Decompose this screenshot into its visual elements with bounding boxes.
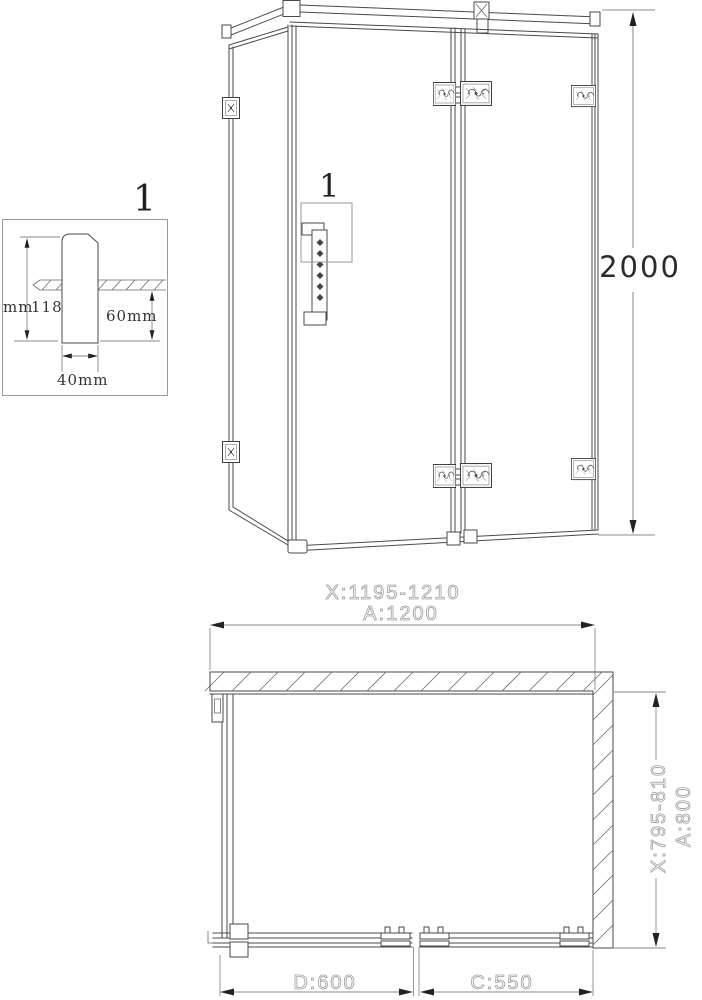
plan-dim-door-value: C:550 [470, 972, 533, 994]
detail-dim-protrusion-value: 60mm [106, 307, 158, 325]
detail-dim-width: 40mm [57, 345, 109, 389]
drawing-svg: 1 mm 118 60mm 40mm [0, 0, 702, 1000]
plan-dim-depth: X:795-810 A:800 [613, 692, 695, 948]
plan-side-panel [208, 694, 233, 943]
right-wall [593, 672, 613, 948]
top-rail [222, 1, 600, 39]
wall-bracket-bottom-left [223, 442, 240, 463]
handle-section [62, 234, 98, 343]
plan-view: X:1195-1210 A:1200 [205, 582, 695, 996]
door-handle [302, 223, 327, 325]
detail-view: 1 mm 118 60mm 40mm [3, 179, 168, 396]
glass-panels [229, 22, 598, 553]
wall-bracket-top-left [223, 98, 240, 119]
elevation-view: 1 2000 [222, 1, 681, 554]
plan-front-edge [213, 924, 593, 957]
elevation-dim-height: 2000 [598, 10, 681, 535]
plan-hinge-right [420, 927, 449, 946]
plan-hinge-left [381, 927, 410, 946]
plan-dim-fixed-value: D:600 [293, 972, 356, 994]
elevation-dim-height-value: 2000 [599, 250, 681, 284]
rail-corner-joint [283, 1, 300, 17]
technical-drawing-sheet: 1 mm 118 60mm 40mm [0, 0, 702, 1000]
wall-clamp-bottom-right [571, 458, 595, 479]
plan-dim-door: C:550 [420, 950, 593, 996]
rail-clamp [474, 2, 489, 33]
elevation-callout-label: 1 [319, 167, 339, 205]
plan-dim-width: A:1200 [363, 603, 438, 625]
detail-dim-total-value: 118 [31, 298, 63, 316]
plan-dim-depth-range: X:795-810 [648, 763, 670, 873]
back-wall [205, 672, 613, 694]
hinge-top-pair [433, 82, 491, 106]
wall-clamp-top-right [571, 85, 595, 106]
detail-dim-protrusion: 60mm [100, 291, 160, 341]
plan-dim-fixed: D:600 [220, 947, 419, 996]
plan-wall-clamp [560, 927, 589, 946]
plan-dim-width-line [210, 622, 595, 691]
hinge-bottom-pair [433, 464, 491, 488]
detail-dim-total-prefix: mm [3, 298, 33, 316]
detail-callout-label: 1 [133, 179, 156, 220]
plan-dim-width-range: X:1195-1210 [325, 582, 460, 604]
detail-dim-width-value: 40mm [57, 371, 109, 389]
corner-clamp [230, 924, 248, 939]
glass-section [33, 280, 166, 290]
plan-dim-depth-value: A:800 [673, 785, 695, 847]
detail-dim-total: mm 118 [3, 237, 63, 341]
